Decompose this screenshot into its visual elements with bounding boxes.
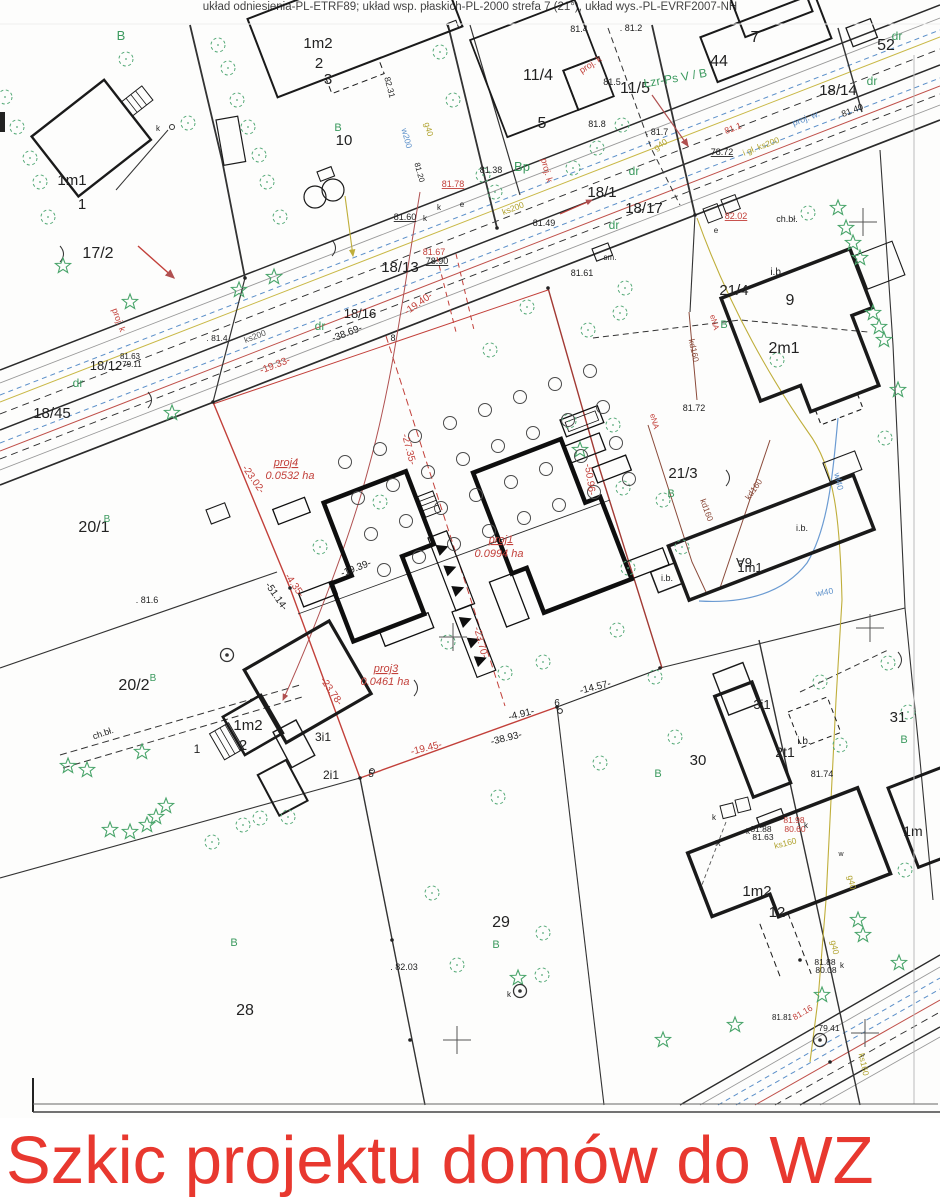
map-label: 81.78 — [442, 179, 465, 189]
map-label: proj4 — [273, 457, 298, 469]
map-label: 18/45 — [33, 405, 71, 422]
map-label: 81.16 — [791, 1003, 815, 1022]
bush-icon — [610, 623, 624, 637]
tree-icon — [845, 235, 860, 250]
map-label: B — [117, 28, 126, 43]
bush-icon — [236, 818, 250, 832]
map-label: 12 — [769, 904, 786, 921]
map-label: 81.1 — [723, 120, 743, 136]
map-label: -19.45- — [410, 739, 443, 757]
map-label: kd160 — [687, 338, 702, 363]
tree-icon — [855, 927, 870, 942]
map-label: dr — [892, 29, 903, 43]
proposed-house-B — [451, 419, 669, 627]
map-label: 21/4 — [719, 282, 748, 299]
orchard-tree-icon — [549, 378, 562, 391]
buildings-proposed — [267, 406, 669, 678]
bush-icon — [205, 835, 219, 849]
map-label: g40 — [422, 121, 435, 138]
bush-icon — [593, 756, 607, 770]
tree-icon — [122, 294, 137, 309]
map-label: 7 — [751, 29, 760, 46]
map-label: dr — [609, 218, 620, 232]
tree-icon — [79, 762, 94, 777]
map-label: proj. k — [539, 157, 555, 184]
orchard-tree-icon — [479, 404, 492, 417]
road-network — [0, 5, 940, 485]
map-label: R — [715, 839, 721, 848]
map-label: 81.81 — [772, 1013, 793, 1022]
map-label: B — [230, 937, 237, 949]
terrace-2 — [592, 455, 631, 483]
orchard-tree-icon — [492, 440, 505, 453]
map-label: k — [156, 124, 161, 133]
orchard-tree-icon — [444, 417, 457, 430]
map-label: wl40 — [832, 471, 846, 491]
orchard-tree-icon — [365, 528, 378, 541]
map-label: 3i1 — [315, 730, 331, 744]
map-label: -14.57- — [579, 678, 612, 696]
bush-icon — [241, 120, 255, 134]
well-icon — [814, 1034, 827, 1047]
tree-icon — [134, 744, 149, 759]
map-label: wl40 — [814, 586, 834, 599]
map-label: k — [507, 990, 512, 999]
map-label: 81.60 — [394, 212, 417, 222]
map-label: w — [837, 851, 844, 858]
tree-icon — [60, 758, 75, 773]
map-label: proj. w. — [791, 108, 821, 128]
bush-icon — [483, 343, 497, 357]
map-label: 2m1 — [768, 340, 799, 357]
tree-icon — [55, 258, 70, 273]
bush-icon — [498, 666, 512, 680]
bush-icon — [211, 38, 225, 52]
grid-cross-icon — [443, 1026, 471, 1054]
map-label: 20/2 — [118, 677, 149, 694]
orchard-tree-icon — [339, 456, 352, 469]
map-label: sm. — [604, 253, 617, 262]
building-2m1 — [721, 234, 940, 442]
map-label: 0.0532 ha — [266, 470, 315, 482]
map-label: 9 — [786, 292, 795, 309]
tree-icon — [727, 1017, 742, 1032]
map-label: proj. k — [110, 307, 128, 334]
parcel-boundaries — [0, 25, 933, 1105]
map-label: i gł. ks200 — [741, 135, 781, 158]
map-label: 81.5 — [603, 77, 621, 87]
map-label: 80.60 — [784, 824, 806, 834]
map-label: g40 — [846, 874, 859, 890]
map-label: kd160 — [698, 497, 715, 522]
sketch-caption: Szkic projektu domów do WZ — [0, 1118, 940, 1200]
bush-icon — [33, 175, 47, 189]
well-icon — [514, 985, 527, 998]
bush-icon — [425, 886, 439, 900]
tree-icon — [510, 970, 525, 985]
bush-icon — [10, 120, 24, 134]
map-label: -23.02- — [239, 463, 266, 495]
map-label: 79.11 — [122, 360, 142, 369]
map-label: w200 — [399, 126, 414, 149]
map-label: k — [437, 203, 442, 212]
bush-icon — [373, 495, 387, 509]
orchard-tree-icon — [610, 437, 623, 450]
map-label: 31 — [890, 709, 907, 726]
map-label: k — [804, 821, 809, 830]
orchard-tree-icon — [562, 414, 575, 427]
map-label: 1 — [78, 196, 86, 213]
tree-icon — [830, 200, 845, 215]
map-label: 1m2 — [742, 883, 771, 900]
map-label: B — [654, 768, 661, 780]
map-label: 81.63 — [752, 832, 774, 842]
bush-icon — [898, 863, 912, 877]
map-label: 78.72 — [711, 147, 734, 157]
map-label: e — [714, 226, 719, 235]
map-label: i.b. — [770, 267, 783, 278]
orchard-tree-icon — [514, 391, 527, 404]
bush-icon — [313, 540, 327, 554]
bush-icon — [581, 323, 595, 337]
map-label: 81.72 — [683, 403, 706, 413]
orchard-tree-icon — [553, 499, 566, 512]
map-label: eNA — [708, 314, 721, 332]
orchard-tree-icon — [352, 492, 365, 505]
orchard-tree-icon — [518, 512, 531, 525]
map-label: dr — [867, 74, 878, 88]
map-label: 2i1 — [323, 768, 339, 782]
map-label: kd160 — [743, 477, 765, 502]
map-label: i.b. — [661, 573, 673, 583]
tree-icon — [158, 798, 173, 813]
map-label: k — [423, 214, 428, 223]
map-label: g40 — [652, 136, 670, 152]
map-label: 1 — [194, 742, 201, 756]
map-label: -38.93- — [490, 729, 523, 747]
map-label: B — [334, 122, 341, 134]
map-label: 21/3 — [668, 465, 697, 482]
bush-icon — [613, 306, 627, 320]
map-label: . 81.6 — [136, 595, 159, 605]
map-label: -38.69- — [330, 323, 364, 345]
orchard-tree-icon — [540, 463, 553, 476]
bush-icon — [260, 175, 274, 189]
map-label: i.b. — [796, 523, 808, 533]
orchard-tree-icon — [527, 427, 540, 440]
building-1m2-top — [248, 0, 469, 112]
map-label: 81.4 — [570, 24, 588, 34]
map-label: 18/1 — [587, 184, 616, 201]
map-label: 79.41 — [818, 1023, 840, 1033]
bush-icon — [813, 675, 827, 689]
map-label: 18/17 — [625, 200, 663, 217]
map-label: 1m2 — [233, 717, 262, 734]
utility-lines — [116, 95, 842, 1062]
map-label: 78.90 — [426, 256, 449, 266]
bush-icon — [230, 93, 244, 107]
map-label: eNA — [648, 413, 661, 431]
bush-icon — [536, 926, 550, 940]
building-1m1-nw — [32, 64, 172, 197]
scanned-survey-sketch: { "header": { "datum_note": "układ odnie… — [0, 0, 940, 1200]
retaining-strip-2 — [452, 605, 496, 678]
map-label: 30 — [690, 752, 707, 769]
orchard-tree-icon — [387, 479, 400, 492]
bush-icon — [252, 148, 266, 162]
bush-icon — [450, 958, 464, 972]
bush-icon — [23, 151, 37, 165]
map-label: 1m1 — [57, 172, 86, 189]
map-label: 18/16 — [344, 306, 377, 321]
map-label: 81.20 — [412, 162, 426, 184]
bush-icon — [536, 655, 550, 669]
bush-icon — [221, 61, 235, 75]
grid-cross-icon — [851, 1019, 879, 1047]
symbols-layer — [0, 38, 915, 1054]
map-label: B — [104, 514, 111, 525]
map-label: ch.bł. — [776, 214, 798, 224]
map-label: 81.61 — [571, 268, 594, 278]
bush-icon — [253, 811, 267, 825]
map-label: proj3 — [373, 663, 399, 675]
map-label: 0.0461 ha — [361, 676, 410, 688]
shed-ib-road — [216, 116, 246, 165]
bush-icon — [41, 210, 55, 224]
map-label: 11/4 — [523, 67, 553, 84]
building-52 — [846, 19, 877, 47]
tree-icon — [122, 824, 137, 839]
map-label: 28 — [236, 1002, 254, 1019]
map-label: Łzr-Ps V / B — [643, 66, 708, 91]
map-label: 18/13 — [381, 259, 419, 276]
bush-icon — [446, 93, 460, 107]
map-label: -27.35- — [399, 433, 418, 466]
map-label: B — [900, 734, 907, 746]
orchard-tree-icon — [457, 453, 470, 466]
map-label: dr — [73, 376, 84, 390]
map-label: proj. k — [577, 53, 603, 75]
bush-icon — [616, 481, 630, 495]
building-1m2-12 — [685, 780, 914, 999]
map-label: 18/14 — [819, 82, 857, 99]
bush-icon — [181, 116, 195, 130]
map-label: 0.0994 ha — [475, 548, 524, 560]
map-label: B — [720, 319, 727, 331]
map-label: 81.74 — [811, 769, 834, 779]
bush-icon — [618, 281, 632, 295]
map-label: -50.96- — [582, 463, 597, 496]
map-label: -4.35- — [282, 572, 306, 600]
datum-note: układ odniesienia-PL-ETRF89; układ wsp. … — [203, 1, 737, 13]
map-label: i.b. — [797, 736, 810, 747]
map-label: B — [492, 939, 499, 951]
map-label: ks200 — [501, 199, 526, 217]
map-label: B — [150, 673, 157, 684]
map-label: 81.8 — [588, 119, 606, 129]
sewer-line-kd160 — [648, 312, 770, 592]
map-label: 10 — [336, 132, 353, 149]
orchard-tree-icon — [505, 476, 518, 489]
map-label: 8 — [390, 333, 395, 343]
bush-icon — [606, 418, 620, 432]
labels-layer: 17/218/1218/4518/1318/16-38.69-818/118/1… — [33, 23, 923, 1077]
map-label: B — [667, 488, 674, 500]
map-label: 3 — [324, 71, 332, 88]
map-label: -19.40- — [402, 290, 434, 317]
bush-icon — [878, 431, 892, 445]
grid-cross-icon — [849, 208, 877, 236]
tree-icon — [850, 912, 865, 927]
map-label: 2 — [239, 737, 247, 754]
map-label: 6 — [554, 698, 560, 709]
map-label: dr — [315, 319, 326, 333]
map-label: 2t1 — [775, 744, 795, 760]
bush-icon — [491, 790, 505, 804]
map-label: -23.78- — [317, 675, 344, 707]
bush-icon — [0, 90, 12, 104]
bush-icon — [833, 738, 847, 752]
shed-20-1 — [206, 503, 230, 524]
bush-icon — [520, 300, 534, 314]
tree-icon — [231, 282, 246, 297]
bush-icon — [801, 206, 815, 220]
map-label: 5 — [368, 769, 374, 780]
transformer-station — [304, 167, 344, 208]
map-label: ks200 — [243, 327, 268, 345]
map-label: 81.49 — [533, 218, 556, 228]
map-label: . 81.4 — [206, 333, 228, 343]
map-label: Bp — [514, 159, 530, 174]
grid-cross-icon — [856, 614, 884, 642]
shed-ib-e — [788, 697, 841, 748]
building-2i1-w — [258, 760, 308, 816]
orchard-tree-icon — [584, 365, 597, 378]
map-label: ks160 — [773, 835, 798, 850]
map-label: 3i1 — [753, 697, 770, 712]
map-label: 18/12 — [90, 358, 123, 373]
bush-icon — [273, 210, 287, 224]
bush-icon — [535, 968, 549, 982]
map-label: k — [712, 813, 717, 822]
map-label: 80.08 — [815, 965, 837, 975]
map-label: e — [460, 200, 465, 209]
tree-icon — [814, 987, 829, 1002]
map-label: 6A — [736, 555, 752, 570]
map-label: 2 — [315, 55, 323, 72]
orchard-tree-icon — [378, 564, 391, 577]
control-boxes-koo — [720, 797, 752, 819]
map-label: ch.bł. — [91, 725, 115, 741]
building-1m2-2-sw — [191, 621, 372, 774]
map-label: 5 — [538, 115, 547, 132]
map-label: . 81.7 — [646, 127, 669, 137]
map-label: k — [840, 961, 845, 970]
map-label: proj1 — [488, 534, 513, 546]
map-label: 17/2 — [82, 245, 113, 262]
map-label: g40 — [829, 939, 842, 955]
bush-icon — [433, 45, 447, 59]
proposed-house-A — [267, 454, 478, 669]
bush-icon — [119, 52, 133, 66]
map-label: 44 — [710, 53, 728, 70]
map-label: 1m2 — [303, 35, 332, 52]
map-label: ks160 — [857, 1052, 872, 1077]
orchard-tree-icon — [374, 443, 387, 456]
orchard-tree-icon — [413, 551, 426, 564]
map-label: 29 — [492, 914, 510, 931]
tree-icon — [655, 1032, 670, 1047]
map-label: 82.02 — [725, 211, 748, 221]
orchard-tree-icon — [400, 515, 413, 528]
bush-icon — [881, 656, 895, 670]
map-label: dr — [629, 164, 640, 178]
map-label: -51.14- — [262, 580, 289, 612]
map-label: . 82.03 — [390, 962, 418, 972]
cadastral-map: układ odniesienia-PL-ETRF89; układ wsp. … — [0, 0, 940, 1118]
arrow-17-2 — [138, 246, 174, 278]
map-label: 81.38 — [480, 165, 503, 175]
map-label: 82.31 — [382, 76, 397, 99]
bush-icon — [668, 730, 682, 744]
tree-icon — [102, 822, 117, 837]
map-label: 1m — [903, 823, 922, 839]
tree-icon — [891, 955, 906, 970]
well-icon — [221, 649, 234, 662]
tree-icon — [890, 382, 905, 397]
road-bottom-right — [680, 955, 940, 1105]
